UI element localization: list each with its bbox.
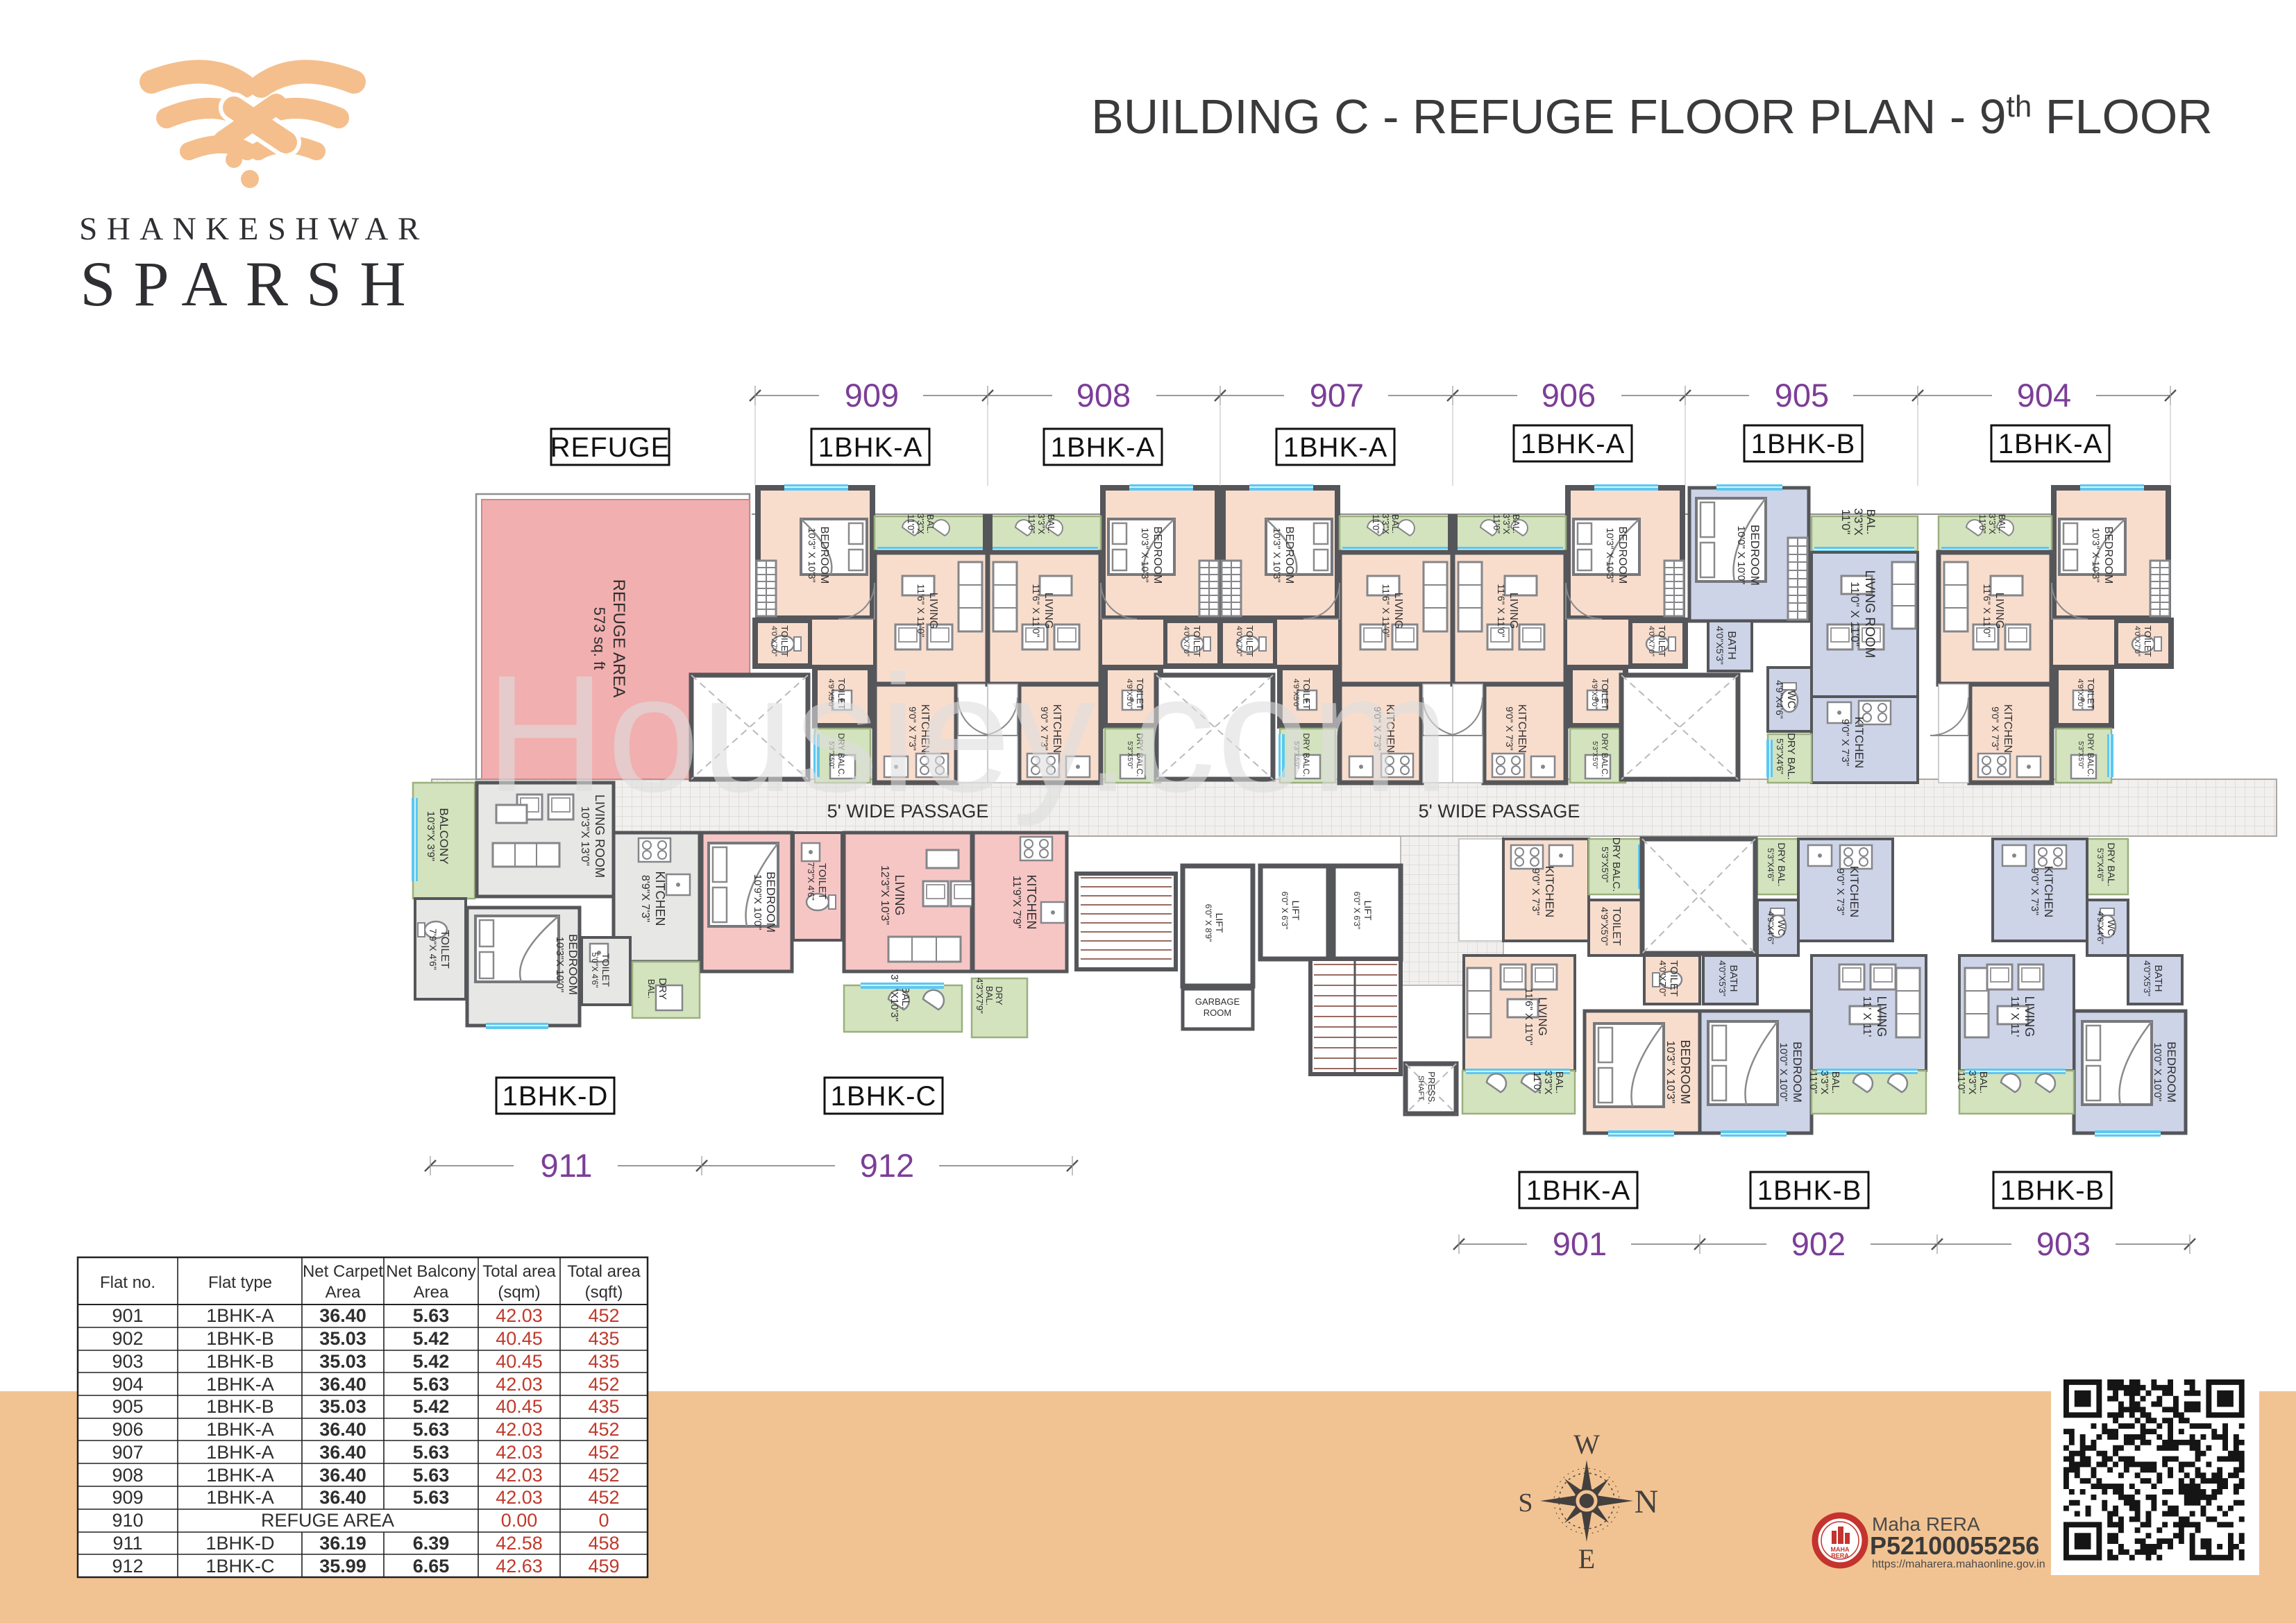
svg-text:435: 435 bbox=[588, 1328, 619, 1349]
svg-text:904: 904 bbox=[112, 1374, 143, 1395]
svg-text:1BHK-A: 1BHK-A bbox=[1526, 1175, 1631, 1206]
svg-text:LIVING ROOM: LIVING ROOM bbox=[1862, 570, 1877, 658]
svg-text:4'0"X5'3": 4'0"X5'3" bbox=[1714, 626, 1725, 665]
svg-text:906: 906 bbox=[112, 1419, 143, 1440]
svg-text:S: S bbox=[1518, 1488, 1533, 1518]
svg-text:Housiey.com: Housiey.com bbox=[485, 640, 1451, 826]
svg-text:42.03: 42.03 bbox=[496, 1419, 543, 1440]
svg-text:903: 903 bbox=[112, 1351, 143, 1372]
svg-text:1BHK-A: 1BHK-A bbox=[206, 1487, 274, 1508]
svg-text:5'3"X5'0": 5'3"X5'0" bbox=[1591, 741, 1598, 769]
svg-text:9'0" X 7'3": 9'0" X 7'3" bbox=[1530, 868, 1542, 915]
svg-text:452: 452 bbox=[588, 1487, 619, 1508]
svg-text:LIVING: LIVING bbox=[927, 593, 939, 629]
svg-text:LIFT: LIFT bbox=[1362, 901, 1374, 921]
svg-text:BEDROOM: BEDROOM bbox=[818, 527, 830, 584]
svg-text:12'3"X 10'3": 12'3"X 10'3" bbox=[879, 865, 890, 925]
svg-text:907: 907 bbox=[112, 1442, 143, 1463]
svg-text:BAL.: BAL. bbox=[1977, 1071, 1989, 1094]
svg-text:9'0" X 7'3": 9'0" X 7'3" bbox=[1990, 706, 2001, 751]
svg-text:5'0"X 4'6": 5'0"X 4'6" bbox=[590, 952, 600, 987]
svg-text:KITCHEN: KITCHEN bbox=[1543, 866, 1556, 918]
svg-text:5.63: 5.63 bbox=[413, 1487, 450, 1508]
svg-text:8'9"X 7'3": 8'9"X 7'3" bbox=[639, 875, 651, 922]
svg-text:(sqm): (sqm) bbox=[498, 1283, 540, 1302]
svg-text:6'0" X 6'3": 6'0" X 6'3" bbox=[1352, 892, 1362, 929]
svg-text:6'0" X 6'3": 6'0" X 6'3" bbox=[1280, 892, 1290, 929]
svg-text:4'9"X4'6": 4'9"X4'6" bbox=[1774, 680, 1785, 719]
svg-text:10'0" X 10'0": 10'0" X 10'0" bbox=[1735, 526, 1747, 585]
svg-text:11'0": 11'0" bbox=[906, 514, 916, 534]
svg-text:5.42: 5.42 bbox=[413, 1351, 450, 1372]
svg-text:4'0"X5'3": 4'0"X5'3" bbox=[1717, 960, 1728, 996]
svg-text:Flat no.: Flat no. bbox=[100, 1273, 155, 1292]
svg-text:452: 452 bbox=[588, 1465, 619, 1486]
svg-text:Total area: Total area bbox=[482, 1262, 556, 1281]
svg-text:(sqft): (sqft) bbox=[585, 1283, 623, 1302]
svg-text:4'0"X5'3": 4'0"X5'3" bbox=[2142, 960, 2152, 996]
svg-text:BEDROOM: BEDROOM bbox=[764, 872, 777, 933]
svg-text:36.40: 36.40 bbox=[319, 1487, 366, 1508]
svg-text:5.63: 5.63 bbox=[413, 1419, 450, 1440]
svg-text:905: 905 bbox=[1775, 377, 1829, 414]
svg-text:BAL.: BAL. bbox=[984, 986, 995, 1005]
svg-text:BATH: BATH bbox=[1725, 631, 1737, 659]
svg-text:1BHK-A: 1BHK-A bbox=[1051, 432, 1156, 463]
svg-text:REFUGE AREA: REFUGE AREA bbox=[261, 1510, 394, 1531]
svg-text:1BHK-A: 1BHK-A bbox=[206, 1442, 274, 1463]
svg-text:KITCHEN: KITCHEN bbox=[2042, 866, 2055, 918]
svg-text:35.03: 35.03 bbox=[319, 1396, 366, 1417]
svg-text:KITCHEN: KITCHEN bbox=[1848, 866, 1861, 918]
svg-text:Area: Area bbox=[326, 1283, 361, 1302]
svg-text:BEDROOM: BEDROOM bbox=[1151, 527, 1163, 584]
svg-text:35.99: 35.99 bbox=[319, 1556, 366, 1577]
svg-text:36.40: 36.40 bbox=[319, 1419, 366, 1440]
svg-text:BAL.: BAL. bbox=[1864, 509, 1877, 535]
svg-text:1BHK-C: 1BHK-C bbox=[205, 1556, 274, 1577]
svg-text:1BHK-A: 1BHK-A bbox=[206, 1374, 274, 1395]
svg-text:LIVING: LIVING bbox=[1875, 996, 1889, 1037]
svg-text:1BHK-A: 1BHK-A bbox=[206, 1419, 274, 1440]
svg-text:11'0": 11'0" bbox=[1531, 1071, 1543, 1094]
svg-text:10'3"X 10'0": 10'3"X 10'0" bbox=[554, 937, 566, 993]
svg-text:KITCHEN: KITCHEN bbox=[1516, 704, 1528, 753]
svg-text:42.03: 42.03 bbox=[496, 1442, 543, 1463]
svg-text:TOILET: TOILET bbox=[1668, 960, 1680, 996]
svg-text:11' X 11': 11' X 11' bbox=[1861, 996, 1873, 1037]
svg-text:Area: Area bbox=[414, 1283, 449, 1302]
svg-text:4'9"X5'0": 4'9"X5'0" bbox=[2076, 679, 2084, 709]
svg-text:1BHK-A: 1BHK-A bbox=[1998, 429, 2103, 459]
svg-text:11'0": 11'0" bbox=[1839, 509, 1852, 534]
svg-text:DRY BAL.: DRY BAL. bbox=[2106, 842, 2117, 886]
svg-text:5'3"X5'0": 5'3"X5'0" bbox=[1600, 847, 1610, 883]
svg-text:40.45: 40.45 bbox=[496, 1396, 543, 1417]
svg-text:4'3"X7'9": 4'3"X7'9" bbox=[974, 978, 985, 1014]
svg-text:5.42: 5.42 bbox=[413, 1396, 450, 1417]
svg-text:40.45: 40.45 bbox=[496, 1351, 543, 1372]
svg-text:10'3" X 10'3": 10'3" X 10'3" bbox=[1272, 527, 1283, 582]
svg-text:452: 452 bbox=[588, 1305, 619, 1326]
svg-text:LIVING: LIVING bbox=[2023, 996, 2036, 1037]
svg-text:5'3"X4'6": 5'3"X4'6" bbox=[1766, 848, 1775, 881]
svg-text:DRY BAL.: DRY BAL. bbox=[1785, 733, 1797, 780]
svg-text:BAL.: BAL. bbox=[1830, 1071, 1841, 1094]
svg-text:SPARSH: SPARSH bbox=[80, 248, 423, 319]
svg-text:BALCONY: BALCONY bbox=[437, 808, 450, 864]
svg-text:BATH: BATH bbox=[1728, 965, 1739, 992]
svg-text:452: 452 bbox=[588, 1442, 619, 1463]
svg-text:BEDROOM: BEDROOM bbox=[2102, 527, 2114, 584]
svg-text:BAL.: BAL. bbox=[925, 514, 936, 534]
svg-text:LIVING: LIVING bbox=[1508, 593, 1519, 629]
svg-text:5.63: 5.63 bbox=[413, 1305, 450, 1326]
svg-text:4'9"X5'0": 4'9"X5'0" bbox=[1599, 907, 1610, 946]
svg-text:TOILET: TOILET bbox=[1610, 907, 1622, 946]
svg-text:1BHK-C: 1BHK-C bbox=[831, 1081, 937, 1112]
svg-text:3'3"X: 3'3"X bbox=[915, 513, 926, 535]
svg-text:5'3"X4'6": 5'3"X4'6" bbox=[2095, 848, 2105, 881]
svg-text:KITCHEN: KITCHEN bbox=[1852, 717, 1866, 769]
svg-text:5.63: 5.63 bbox=[413, 1374, 450, 1395]
svg-text:PRESS.: PRESS. bbox=[1426, 1071, 1437, 1105]
svg-text:ROOM: ROOM bbox=[1204, 1008, 1231, 1018]
svg-text:1BHK-D: 1BHK-D bbox=[503, 1081, 609, 1112]
svg-text:1BHK-B: 1BHK-B bbox=[206, 1328, 274, 1349]
svg-text:P52100055256: P52100055256 bbox=[1870, 1531, 2039, 1560]
svg-text:10'3" X 10'3": 10'3" X 10'3" bbox=[1664, 1041, 1676, 1103]
svg-text:10'3" X 10'3": 10'3" X 10'3" bbox=[2091, 527, 2102, 582]
svg-text:11'6" X 11'0": 11'6" X 11'0" bbox=[1523, 988, 1535, 1046]
svg-text:GARBAGE: GARBAGE bbox=[1195, 996, 1240, 1007]
svg-text:35.03: 35.03 bbox=[319, 1351, 366, 1372]
svg-text:BATH: BATH bbox=[2152, 965, 2164, 992]
svg-text:10'9"X 10'0": 10'9"X 10'0" bbox=[752, 874, 763, 931]
svg-text:910: 910 bbox=[112, 1510, 143, 1531]
svg-text:11'0": 11'0" bbox=[1492, 514, 1502, 534]
svg-text:5.63: 5.63 bbox=[413, 1442, 450, 1463]
svg-text:36.19: 36.19 bbox=[319, 1533, 366, 1554]
svg-text:1BHK-A: 1BHK-A bbox=[206, 1305, 274, 1326]
svg-text:KITCHEN: KITCHEN bbox=[1024, 874, 1038, 929]
svg-text:LIVING: LIVING bbox=[1536, 997, 1549, 1036]
svg-text:42.03: 42.03 bbox=[496, 1465, 543, 1486]
svg-text:9'0" X 7'3": 9'0" X 7'3" bbox=[1504, 706, 1515, 751]
svg-text:11'0": 11'0" bbox=[1955, 1071, 1967, 1094]
svg-text:DRY BALC.: DRY BALC. bbox=[2086, 733, 2095, 777]
svg-text:1BHK-A: 1BHK-A bbox=[818, 432, 923, 463]
svg-text:BEDROOM: BEDROOM bbox=[1617, 527, 1628, 584]
svg-text:9'0" X 7'3": 9'0" X 7'3" bbox=[2029, 868, 2041, 915]
svg-text:0: 0 bbox=[598, 1510, 609, 1531]
svg-text:E: E bbox=[1578, 1543, 1595, 1574]
svg-text:11'6" X 11'0": 11'6" X 11'0" bbox=[915, 584, 927, 637]
svg-text:3'3"X: 3'3"X bbox=[1381, 513, 1391, 535]
svg-text:0.00: 0.00 bbox=[501, 1510, 538, 1531]
svg-text:11'9"X 7'9": 11'9"X 7'9" bbox=[1011, 876, 1022, 928]
svg-text:1BHK-B: 1BHK-B bbox=[1757, 1175, 1862, 1206]
svg-text:908: 908 bbox=[112, 1465, 143, 1486]
svg-text:4'9"X5'0": 4'9"X5'0" bbox=[1590, 679, 1598, 709]
svg-text:LIVING: LIVING bbox=[1043, 593, 1054, 629]
svg-text:901: 901 bbox=[1553, 1225, 1607, 1262]
svg-text:452: 452 bbox=[588, 1419, 619, 1440]
svg-text:BAL.: BAL. bbox=[1046, 514, 1056, 534]
svg-text:3'3"X: 3'3"X bbox=[1852, 508, 1865, 536]
svg-text:Total area: Total area bbox=[567, 1262, 641, 1281]
svg-text:3'3"X: 3'3"X bbox=[1542, 1071, 1554, 1095]
svg-text:BEDROOM: BEDROOM bbox=[1678, 1039, 1692, 1104]
svg-text:1BHK-A: 1BHK-A bbox=[1283, 432, 1388, 463]
svg-text:912: 912 bbox=[112, 1556, 143, 1577]
svg-text:458: 458 bbox=[588, 1533, 619, 1554]
svg-text:42.03: 42.03 bbox=[496, 1374, 543, 1395]
svg-text:9'0" X 7'3": 9'0" X 7'3" bbox=[1834, 868, 1846, 915]
svg-text:BEDROOM: BEDROOM bbox=[2165, 1042, 2178, 1103]
svg-text:4'0"X7'0": 4'0"X7'0" bbox=[1647, 626, 1655, 656]
svg-text:36.40: 36.40 bbox=[319, 1374, 366, 1395]
svg-text:902: 902 bbox=[112, 1328, 143, 1349]
svg-text:4'0"X7'0": 4'0"X7'0" bbox=[2133, 626, 2141, 656]
svg-text:40.45: 40.45 bbox=[496, 1328, 543, 1349]
svg-text:DRY: DRY bbox=[994, 986, 1004, 1005]
svg-text:42.03: 42.03 bbox=[496, 1305, 543, 1326]
svg-text:3'3"X: 3'3"X bbox=[1818, 1071, 1830, 1095]
svg-text:WC: WC bbox=[1776, 919, 1787, 935]
svg-text:3'9"X10'3": 3'9"X10'3" bbox=[888, 974, 900, 1021]
svg-text:912: 912 bbox=[860, 1147, 914, 1184]
svg-text:7'3"X 4'6": 7'3"X 4'6" bbox=[806, 862, 816, 901]
svg-text:42.03: 42.03 bbox=[496, 1487, 543, 1508]
svg-text:435: 435 bbox=[588, 1351, 619, 1372]
svg-text:BEDROOM: BEDROOM bbox=[1791, 1042, 1804, 1103]
svg-text:BEDROOM: BEDROOM bbox=[566, 934, 580, 995]
svg-text:Net Balcony: Net Balcony bbox=[386, 1262, 475, 1281]
svg-text:1BHK-B: 1BHK-B bbox=[1751, 429, 1856, 459]
svg-text:9'0" X 7'3": 9'0" X 7'3" bbox=[1839, 719, 1851, 766]
svg-text:11'6" X 11'0": 11'6" X 11'0" bbox=[1496, 584, 1507, 637]
svg-text:4'9"X4'6": 4'9"X4'6" bbox=[2095, 911, 2105, 944]
svg-text:TOILET: TOILET bbox=[2086, 678, 2096, 709]
svg-text:4'0"X7'0": 4'0"X7'0" bbox=[1657, 960, 1668, 996]
svg-text:11'6" X 11'0": 11'6" X 11'0" bbox=[1031, 584, 1042, 637]
svg-text:1BHK-B: 1BHK-B bbox=[206, 1396, 274, 1417]
svg-text:42.58: 42.58 bbox=[496, 1533, 543, 1554]
svg-text:1BHK-A: 1BHK-A bbox=[206, 1465, 274, 1486]
svg-text:906: 906 bbox=[1542, 377, 1596, 414]
svg-text:LIVING: LIVING bbox=[1993, 593, 2005, 629]
svg-text:10'3" X 10'3": 10'3" X 10'3" bbox=[1605, 527, 1616, 582]
svg-text:459: 459 bbox=[588, 1556, 619, 1577]
svg-text:N: N bbox=[1635, 1484, 1659, 1520]
svg-text:DRY: DRY bbox=[657, 978, 668, 999]
svg-text:KITCHEN: KITCHEN bbox=[2002, 704, 2014, 753]
svg-text:LIVING: LIVING bbox=[1392, 593, 1404, 629]
svg-text:911: 911 bbox=[112, 1533, 142, 1554]
svg-text:7'9"X 4'6": 7'9"X 4'6" bbox=[428, 928, 439, 970]
svg-text:1BHK-B: 1BHK-B bbox=[2000, 1175, 2105, 1206]
svg-text:35.03: 35.03 bbox=[319, 1328, 366, 1349]
svg-text:11' X 11': 11' X 11' bbox=[2009, 996, 2020, 1037]
svg-text:11'0" X 11'0": 11'0" X 11'0" bbox=[1848, 581, 1862, 647]
svg-text:TOILET: TOILET bbox=[600, 953, 611, 987]
svg-text:TOILET: TOILET bbox=[1657, 625, 1667, 656]
svg-text:4'9"X4'6": 4'9"X4'6" bbox=[1766, 911, 1775, 944]
svg-text:KITCHEN: KITCHEN bbox=[653, 871, 667, 926]
svg-text:BAL.: BAL. bbox=[1553, 1071, 1565, 1094]
svg-text:LIFT: LIFT bbox=[1214, 913, 1225, 933]
svg-text:BAL.: BAL. bbox=[1390, 514, 1401, 534]
svg-text:10'0" X 10'0": 10'0" X 10'0" bbox=[1778, 1043, 1789, 1102]
svg-text:BAL.: BAL. bbox=[1511, 514, 1521, 534]
svg-text:6'0" X 8'9": 6'0" X 8'9" bbox=[1204, 904, 1213, 942]
svg-text:TOILET: TOILET bbox=[2143, 625, 2153, 656]
svg-text:LIVING: LIVING bbox=[893, 874, 906, 915]
svg-text:RERA: RERA bbox=[1831, 1552, 1849, 1559]
svg-text:908: 908 bbox=[1077, 377, 1131, 414]
svg-text:903: 903 bbox=[2036, 1225, 2091, 1262]
svg-text:36.40: 36.40 bbox=[319, 1442, 366, 1463]
svg-text:3'3"X: 3'3"X bbox=[1036, 513, 1047, 535]
svg-text:BEDROOM: BEDROOM bbox=[1748, 525, 1762, 586]
svg-text:452: 452 bbox=[588, 1374, 619, 1395]
svg-text:3'3"X: 3'3"X bbox=[1501, 513, 1512, 535]
svg-text:1BHK-A: 1BHK-A bbox=[1521, 429, 1626, 459]
svg-text:11'0": 11'0" bbox=[1807, 1071, 1819, 1094]
svg-text:BAL.: BAL. bbox=[646, 979, 657, 999]
svg-text:1BHK-B: 1BHK-B bbox=[206, 1351, 274, 1372]
svg-text:REFUGE: REFUGE bbox=[550, 432, 670, 463]
svg-text:SHANKESHWAR: SHANKESHWAR bbox=[79, 211, 429, 247]
svg-text:TOILET: TOILET bbox=[1600, 678, 1610, 709]
svg-text:36.40: 36.40 bbox=[319, 1465, 366, 1486]
svg-text:DRY BAL.: DRY BAL. bbox=[1776, 842, 1787, 886]
svg-text:LIFT: LIFT bbox=[1290, 901, 1301, 921]
svg-text:SHAFT: SHAFT bbox=[1417, 1076, 1425, 1101]
svg-text:10'3"X 3'9": 10'3"X 3'9" bbox=[425, 811, 437, 861]
svg-text:5'3"X4'6": 5'3"X4'6" bbox=[1775, 738, 1785, 774]
svg-text:BAL.: BAL. bbox=[900, 987, 911, 1010]
svg-text:5.63: 5.63 bbox=[413, 1465, 450, 1486]
svg-text:BAL.: BAL. bbox=[1997, 514, 2007, 534]
svg-text:5.42: 5.42 bbox=[413, 1328, 450, 1349]
svg-text:904: 904 bbox=[2017, 377, 2071, 414]
svg-text:911: 911 bbox=[541, 1147, 593, 1184]
svg-text:11'0": 11'0" bbox=[1027, 514, 1037, 534]
svg-text:909: 909 bbox=[845, 377, 899, 414]
svg-text:905: 905 bbox=[112, 1396, 143, 1417]
svg-text:909: 909 bbox=[112, 1487, 143, 1508]
svg-text:Flat type: Flat type bbox=[208, 1273, 272, 1292]
svg-text:11'0": 11'0" bbox=[1371, 514, 1381, 534]
svg-text:3'3"X: 3'3"X bbox=[1987, 513, 1998, 535]
svg-text:DRY BALC.: DRY BALC. bbox=[1600, 733, 1610, 777]
svg-text:TOILET: TOILET bbox=[816, 863, 828, 899]
svg-text:435: 435 bbox=[588, 1396, 619, 1417]
svg-text:10'3" X 10'3": 10'3" X 10'3" bbox=[1140, 527, 1151, 582]
svg-text:3'3"X: 3'3"X bbox=[1966, 1071, 1978, 1095]
svg-text:10'3" X 10'3": 10'3" X 10'3" bbox=[807, 527, 818, 582]
svg-text:W: W bbox=[1573, 1429, 1600, 1460]
svg-text:6.65: 6.65 bbox=[413, 1556, 450, 1577]
svg-text:10'0" X 10'0": 10'0" X 10'0" bbox=[2152, 1043, 2163, 1102]
svg-text:11'6" X 11'0": 11'6" X 11'0" bbox=[1982, 584, 1993, 637]
svg-text:11'6" X 11'0": 11'6" X 11'0" bbox=[1381, 584, 1392, 637]
svg-text:42.63: 42.63 bbox=[496, 1556, 543, 1577]
svg-text:Net Carpet: Net Carpet bbox=[303, 1262, 383, 1281]
svg-text:6.39: 6.39 bbox=[413, 1533, 450, 1554]
svg-text:WC: WC bbox=[1785, 690, 1797, 709]
svg-text:11'0": 11'0" bbox=[1977, 514, 1988, 534]
svg-text:907: 907 bbox=[1310, 377, 1364, 414]
svg-text:901: 901 bbox=[112, 1305, 143, 1326]
svg-text:1BHK-D: 1BHK-D bbox=[205, 1533, 274, 1554]
svg-text:https://maharera.mahaonline.go: https://maharera.mahaonline.gov.in bbox=[1872, 1558, 2045, 1570]
svg-text:TOILET: TOILET bbox=[439, 930, 450, 969]
svg-text:36.40: 36.40 bbox=[319, 1305, 366, 1326]
svg-text:5'3"X5'0": 5'3"X5'0" bbox=[2077, 741, 2084, 769]
svg-text:DRY BALC.: DRY BALC. bbox=[1610, 838, 1622, 892]
svg-text:902: 902 bbox=[1791, 1225, 1846, 1262]
svg-text:BEDROOM: BEDROOM bbox=[1283, 527, 1295, 584]
svg-text:WC: WC bbox=[2106, 919, 2117, 935]
svg-text:BUILDING C - REFUGE FLOOR PLAN: BUILDING C - REFUGE FLOOR PLAN - 9th FLO… bbox=[1091, 90, 2213, 144]
